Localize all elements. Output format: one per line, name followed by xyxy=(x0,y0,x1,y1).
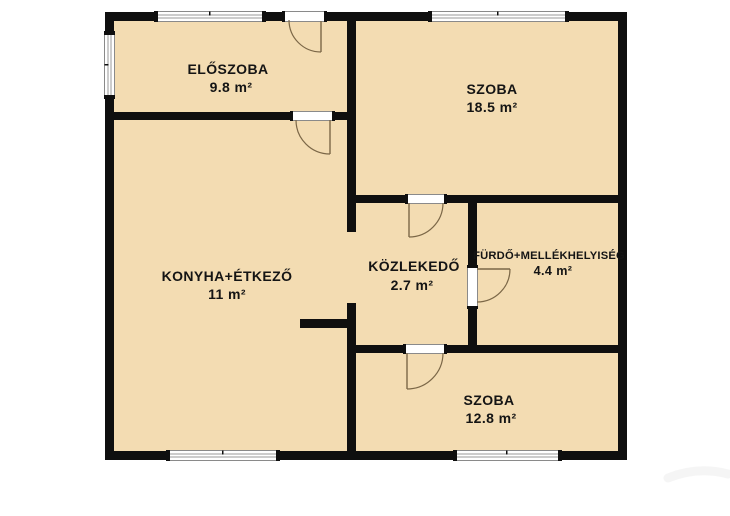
outer-wall-right xyxy=(618,12,627,460)
room-area-szoba-2: 12.8 m² xyxy=(465,410,516,426)
wall-kozlekedo-szoba2 xyxy=(347,345,627,353)
window-szoba-top-icon xyxy=(428,11,569,22)
floor-area xyxy=(105,12,627,460)
room-label-szoba-1: SZOBA xyxy=(467,81,518,97)
room-label-szoba-2: SZOBA xyxy=(464,392,515,408)
room-area-konyha: 11 m² xyxy=(208,286,246,302)
room-area-furdo: 4.4 m² xyxy=(534,264,573,278)
room-label-furdo: FÜRDŐ+MELLÉKHELYISÉG xyxy=(473,249,625,262)
room-label-eloszoba: ELŐSZOBA xyxy=(188,60,269,77)
window-eloszoba-left-icon xyxy=(104,31,115,99)
floor-plan-drawing: ELŐSZOBA 9.8 m² SZOBA 18.5 m² KONYHA+ÉTK… xyxy=(0,0,730,516)
room-area-eloszoba: 9.8 m² xyxy=(210,79,253,95)
watermark xyxy=(668,471,728,478)
window-konyha-bottom-icon xyxy=(166,450,280,461)
wall-stub-konyha xyxy=(300,319,356,328)
room-area-kozlekedo: 2.7 m² xyxy=(391,277,434,293)
window-eloszoba-top-icon xyxy=(154,11,266,22)
wall-szoba-kozlekedo xyxy=(347,195,627,203)
room-label-kozlekedo: KÖZLEKEDŐ xyxy=(368,257,460,274)
floor-plan-page: ELŐSZOBA 9.8 m² SZOBA 18.5 m² KONYHA+ÉTK… xyxy=(0,0,730,516)
window-szoba2-bottom-icon xyxy=(453,450,562,461)
room-label-konyha: KONYHA+ÉTKEZŐ xyxy=(162,267,293,284)
room-area-szoba-1: 18.5 m² xyxy=(466,99,517,115)
